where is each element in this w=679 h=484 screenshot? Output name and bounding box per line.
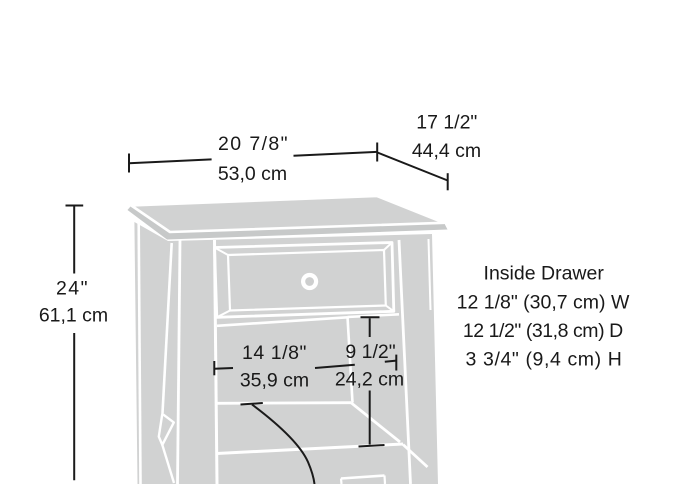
svg-text:61,1 cm: 61,1 cm <box>39 305 108 327</box>
svg-text:3 3/4" (9,4 cm) H: 3 3/4" (9,4 cm) H <box>466 349 623 371</box>
svg-text:24,2 cm: 24,2 cm <box>335 369 404 391</box>
svg-text:12 1/8" (30,7 cm) W: 12 1/8" (30,7 cm) W <box>457 292 630 314</box>
svg-text:24": 24" <box>56 278 89 300</box>
svg-text:14 1/8": 14 1/8" <box>242 342 307 364</box>
svg-text:35,9 cm: 35,9 cm <box>240 370 309 392</box>
svg-text:44,4 cm: 44,4 cm <box>412 140 481 162</box>
svg-text:9 1/2": 9 1/2" <box>345 341 395 363</box>
svg-text:20 7/8": 20 7/8" <box>218 133 289 155</box>
svg-text:17 1/2": 17 1/2" <box>416 112 477 134</box>
svg-text:Inside Drawer: Inside Drawer <box>484 263 605 285</box>
svg-text:53,0 cm: 53,0 cm <box>218 163 287 185</box>
svg-text:12 1/2" (31,8 cm) D: 12 1/2" (31,8 cm) D <box>463 320 623 342</box>
